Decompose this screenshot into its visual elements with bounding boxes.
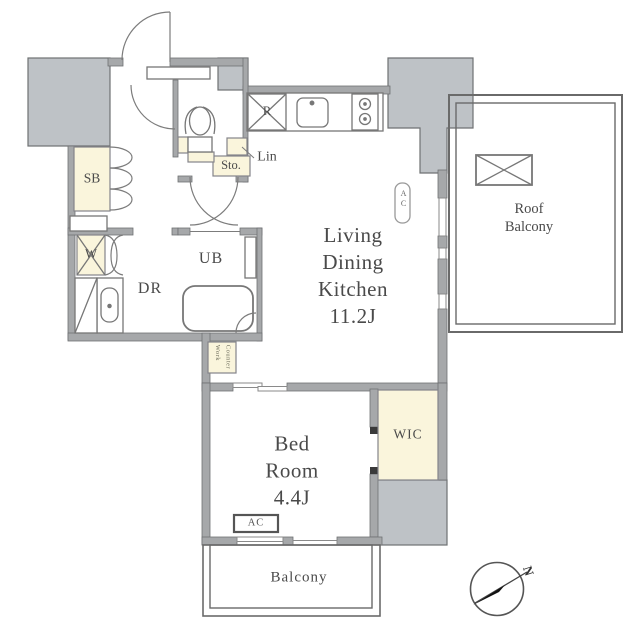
toilet-side-box [178,137,188,153]
burner-dot [364,118,366,120]
roof-balcony-label-line1: Roof [505,200,553,218]
compass-circle [471,563,524,616]
work-counter-label: Work Counter [212,345,233,369]
work-counter-label-line2: Counter [222,345,232,369]
toilet-tank [188,137,212,152]
window-ldk-1 [439,198,446,236]
roof-balcony-label-line2: Balcony [505,218,553,236]
hall-door-swing [131,85,175,129]
dressing-room-label: DR [138,279,162,299]
washer-label: W [85,247,97,263]
ldk-label: Living Dining Kitchen 11.2J [318,222,388,330]
entrance-door-swing [122,12,170,60]
ac-bedroom-label: AC [248,516,265,529]
ldk-door-swing-2 [190,177,238,225]
ldk-door-swing [190,177,238,225]
ldk-label-line2: Dining [318,249,388,276]
bath-shelf [245,237,256,278]
bedroom-label-line2: Room [265,458,318,485]
sb-bifold-arc [110,168,132,189]
walk-in-closet-label: WIC [393,427,422,444]
sliding-window-balcony-a [237,537,283,542]
burner-dot [364,103,366,105]
sliding-door-bedroom-top-b [258,387,287,392]
unit-bath-label: UB [199,249,223,269]
ac-living-label: AC [399,189,408,209]
bedroom-label: Bed Room 4.4J [265,431,318,512]
balcony-label: Balcony [271,569,328,588]
shoe-box-label: SB [84,171,101,188]
basin-dot [108,304,111,307]
toilet-bowl [190,107,211,135]
storage-label: Sto. [221,158,241,174]
linen-label: Lin [257,148,276,166]
ldk-label-line1: Living [318,222,388,249]
pillar-below-wic [375,480,447,545]
floor-plan: Living Dining Kitchen 11.2J Bed Room 4.4… [0,0,640,634]
toilet-bottom-box [188,152,214,162]
sb-bifold-arc [110,147,132,168]
work-counter-label-line1: Work [212,345,222,369]
door-jambs [370,427,378,474]
roof-balcony-label: Roof Balcony [505,200,553,236]
sb-bifold-arc [110,189,132,210]
bedroom-label-line3: 4.4J [265,485,318,512]
refrigerator-label: R [263,104,271,120]
faucet-dot [310,101,314,105]
counter-under-sb [70,216,107,231]
linen-box [227,138,247,155]
bedroom-label-line1: Bed [265,431,318,458]
ldk-label-line4: 11.2J [318,303,388,330]
window-ldk-2 [439,248,446,259]
ldk-label-line3: Kitchen [318,276,388,303]
pillar-block [388,58,473,173]
entrance-sill [147,67,210,79]
bathtub [183,286,253,331]
common-area-block [28,58,110,146]
window-ldk-3 [439,294,446,309]
